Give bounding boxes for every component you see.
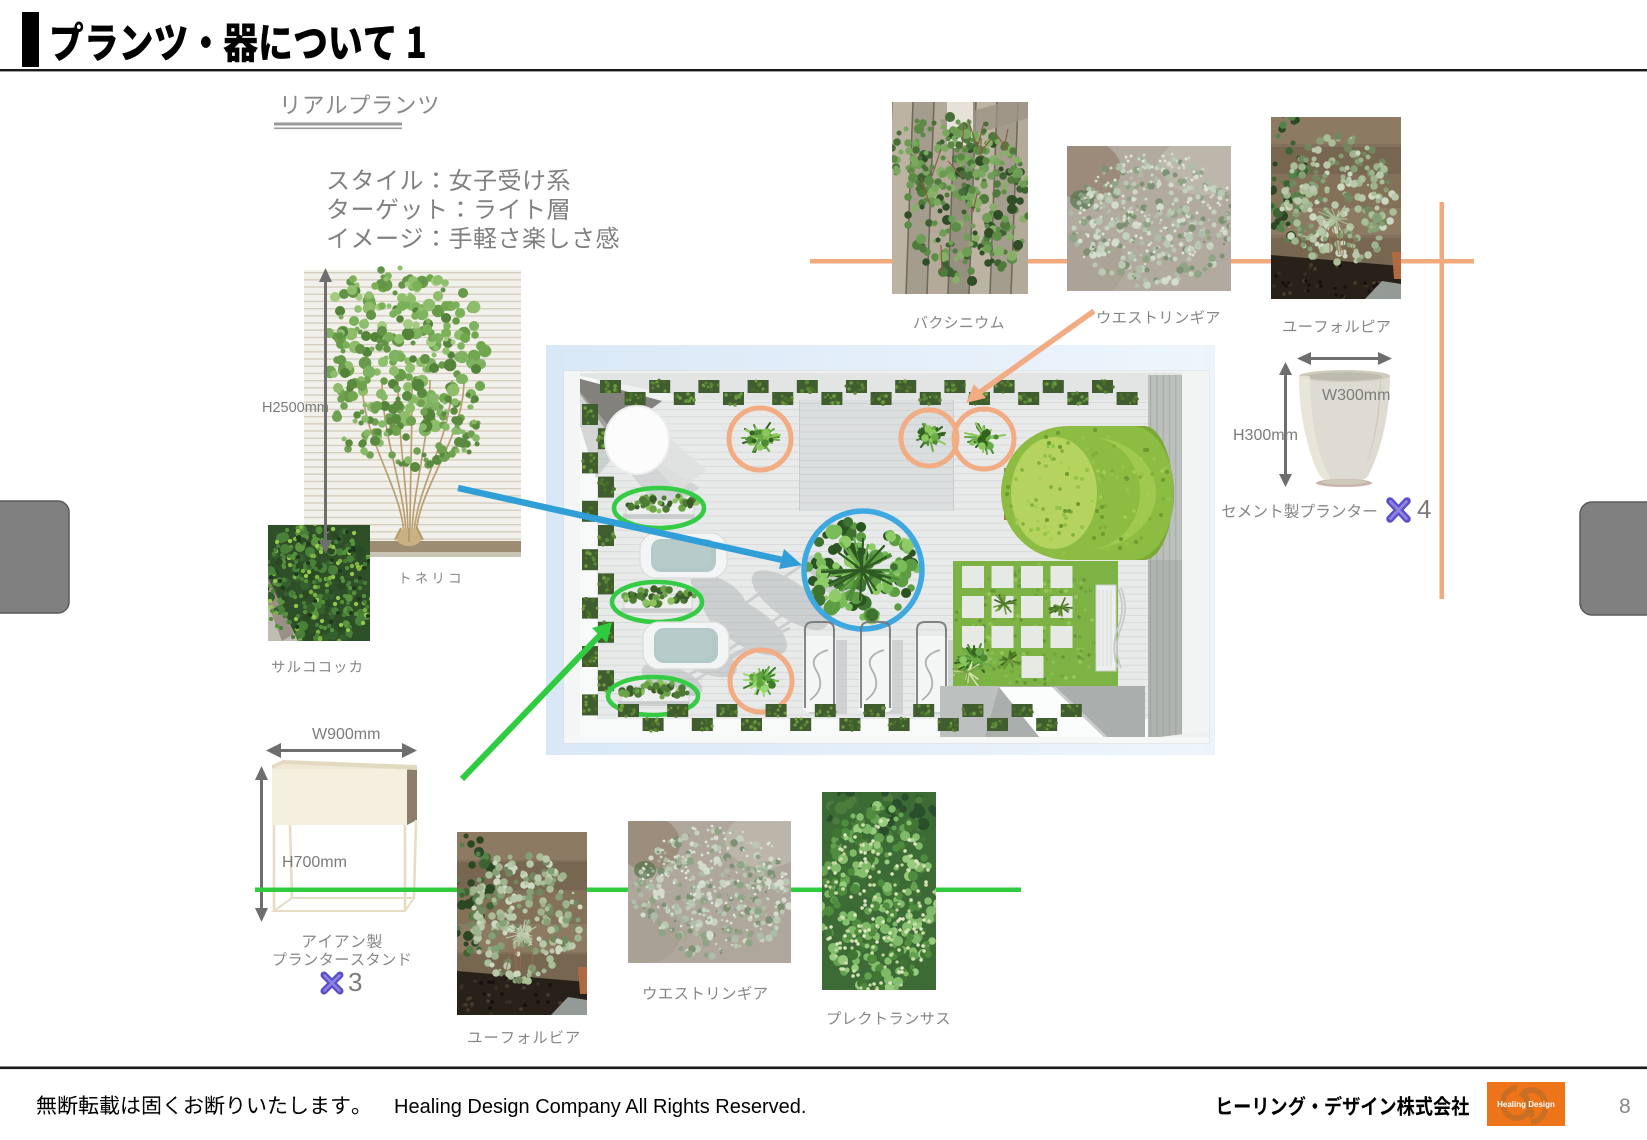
svg-text:H300mm: H300mm <box>1233 427 1298 444</box>
svg-text:H2500mm: H2500mm <box>262 400 329 416</box>
svg-text:W900mm: W900mm <box>312 726 380 743</box>
svg-text:8: 8 <box>1619 1095 1631 1118</box>
svg-text:Healing Design Company All Rig: Healing Design Company All Rights Reserv… <box>394 1096 806 1118</box>
svg-text:W300mm: W300mm <box>1322 387 1390 404</box>
svg-text:3: 3 <box>348 967 362 997</box>
svg-text:Healing Design: Healing Design <box>1497 1100 1555 1109</box>
svg-text:4: 4 <box>1417 494 1431 524</box>
svg-text:H700mm: H700mm <box>282 854 347 871</box>
